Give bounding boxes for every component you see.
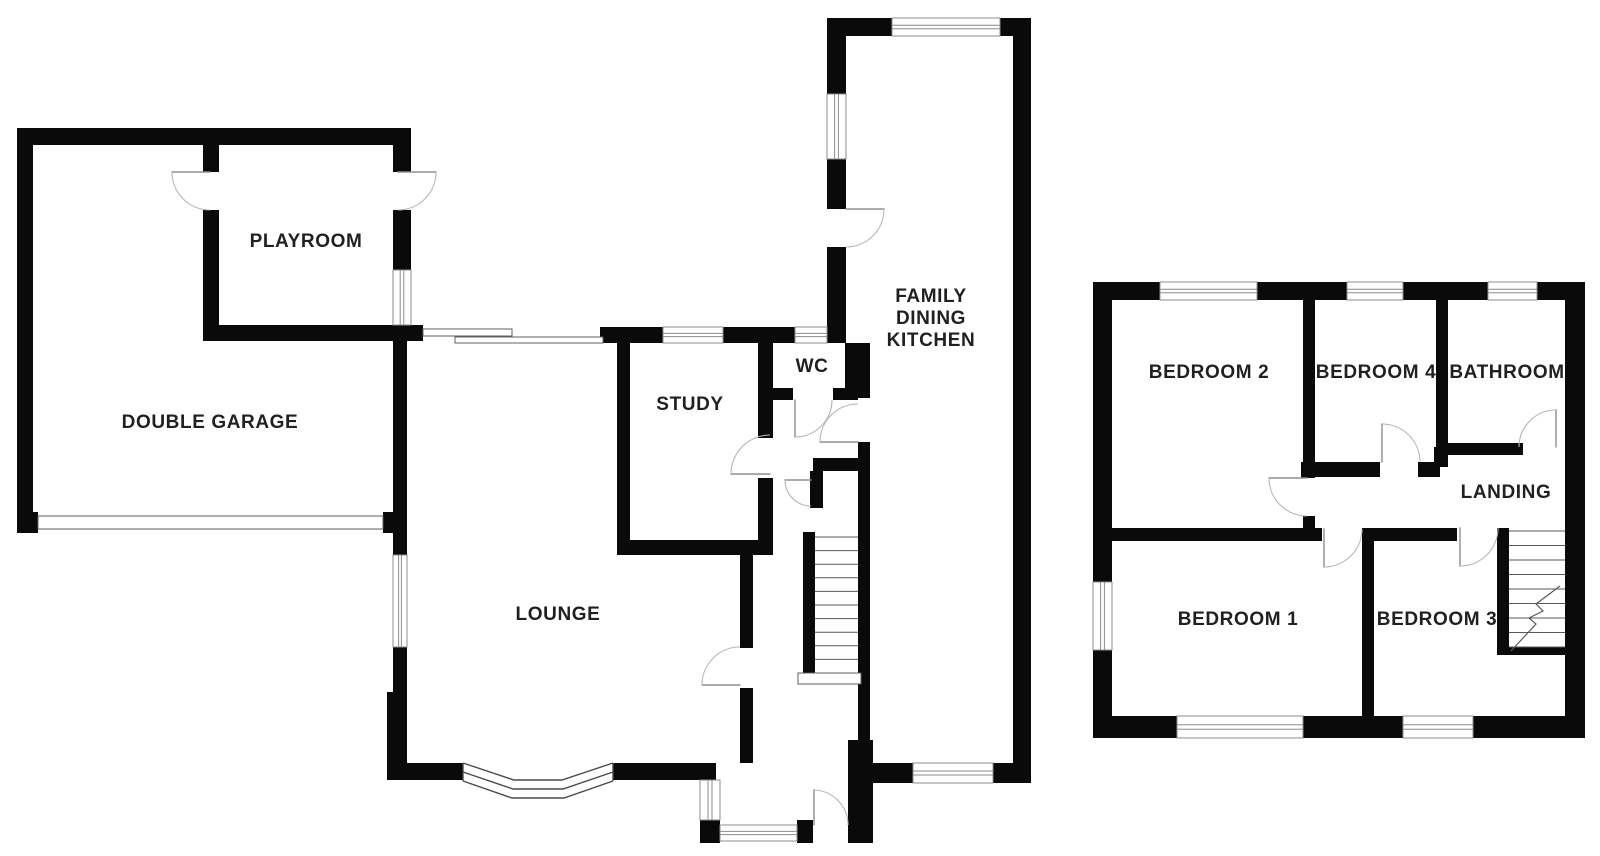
- room-label-kitchen-line3: KITCHEN: [887, 330, 976, 351]
- bay-window-lounge: [463, 763, 613, 798]
- door-front-entrance: [814, 790, 848, 825]
- room-label-bedroom-4: BEDROOM 4: [1316, 362, 1436, 383]
- window-kitchen-top: [892, 18, 1000, 36]
- room-label-kitchen-line1: FAMILY: [895, 286, 967, 307]
- door-study: [731, 435, 770, 474]
- door-playroom-left: [172, 172, 210, 210]
- door-understairs-cupboard: [785, 480, 811, 506]
- door-hall-kitchen: [820, 404, 858, 442]
- ground-floor-doors: [172, 172, 884, 825]
- door-wc: [795, 400, 832, 437]
- door-bathroom: [1519, 410, 1556, 447]
- window-bedroom2: [1160, 282, 1257, 300]
- floor-plan-page: PLAYROOM DOUBLE GARAGE STUDY WC FAMILY D…: [0, 0, 1600, 856]
- door-lounge: [702, 647, 740, 685]
- door-bedroom-2: [1269, 478, 1307, 516]
- first-floor-walls: [1093, 282, 1585, 738]
- room-label-playroom: PLAYROOM: [250, 231, 363, 252]
- window-wc: [795, 327, 827, 343]
- window-playroom: [393, 270, 411, 325]
- window-bathroom: [1488, 282, 1537, 300]
- room-label-lounge: LOUNGE: [516, 604, 601, 625]
- room-label-bathroom: BATHROOM: [1449, 362, 1564, 383]
- door-bedroom-1: [1324, 529, 1362, 567]
- staircase-first: [1509, 531, 1565, 651]
- window-bedroom1-front: [1177, 716, 1303, 738]
- door-kitchen-back: [846, 209, 884, 247]
- room-label-kitchen-line2: DINING: [896, 308, 966, 329]
- window-porch-front: [720, 825, 797, 841]
- ground-floor-plan: PLAYROOM DOUBLE GARAGE STUDY WC FAMILY D…: [17, 18, 1031, 843]
- room-label-bedroom-3: BEDROOM 3: [1377, 609, 1497, 630]
- window-bedroom4: [1347, 282, 1403, 300]
- ground-floor-labels: PLAYROOM DOUBLE GARAGE STUDY WC FAMILY D…: [122, 231, 976, 625]
- window-bedroom3-front: [1403, 716, 1473, 738]
- room-label-wc: WC: [796, 356, 829, 377]
- room-label-bedroom-1: BEDROOM 1: [1178, 609, 1298, 630]
- floor-plan-drawing: PLAYROOM DOUBLE GARAGE STUDY WC FAMILY D…: [0, 0, 1600, 856]
- room-label-study: STUDY: [656, 394, 723, 415]
- door-bedroom-4: [1382, 424, 1420, 462]
- door-bedroom-3: [1460, 528, 1498, 566]
- window-bedroom1-side: [1093, 582, 1112, 650]
- door-playroom-right: [398, 172, 436, 210]
- room-label-bedroom-2: BEDROOM 2: [1149, 362, 1269, 383]
- open-plan-divider-b: [455, 337, 603, 343]
- first-floor-plan: BEDROOM 2 BEDROOM 4 BATHROOM LANDING BED…: [1093, 282, 1585, 738]
- window-lounge-side: [393, 555, 407, 647]
- window-porch-side: [700, 780, 720, 820]
- open-plan-divider-a: [423, 329, 512, 336]
- window-kitchen-bottom: [913, 763, 993, 783]
- room-label-landing: LANDING: [1461, 482, 1552, 503]
- window-kitchen-side: [827, 94, 846, 159]
- room-label-double-garage: DOUBLE GARAGE: [122, 412, 299, 433]
- garage-door-sill: [38, 516, 383, 529]
- window-study: [663, 327, 723, 343]
